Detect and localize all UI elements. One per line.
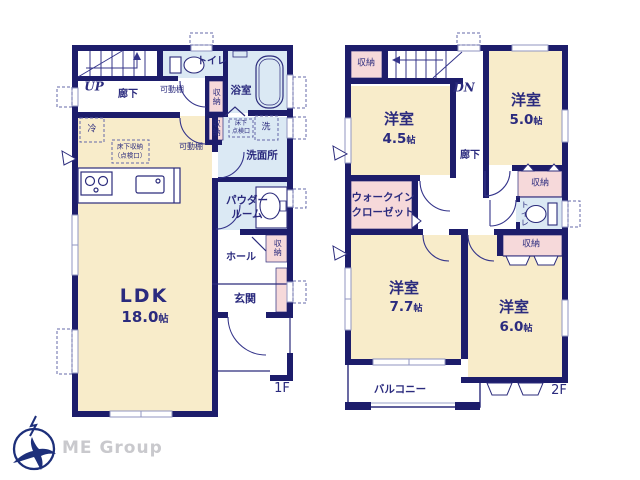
- washroom-label: 洗面所: [246, 150, 278, 161]
- hall-label: ホール: [226, 253, 256, 264]
- balcony-label: バルコニー: [374, 384, 426, 395]
- inspection-label-1: 床下: [235, 121, 247, 127]
- stairs-2f: [392, 51, 462, 78]
- room-d-label: 洋室: [499, 300, 529, 316]
- bird-icon: [13, 437, 56, 470]
- floorplan-page: UP 廊下 トイレ 浴室 可動棚 可動棚 収納 収納 床下 点検口 洗 洗面所 …: [0, 0, 640, 480]
- dn-label: DN: [453, 82, 474, 95]
- floor2-label: 2F: [551, 384, 567, 398]
- storage-hall-label: 収納: [273, 239, 281, 257]
- ldk-label: LDK: [120, 287, 169, 307]
- storage-a-label: 収納: [212, 88, 220, 106]
- wic-label-2: クローゼット: [352, 207, 415, 218]
- room-a-size: 4.5帖: [382, 132, 415, 146]
- fridge-label: 冷: [87, 125, 96, 134]
- flash-icon: [30, 416, 36, 436]
- storage-r2-label: 収納: [522, 240, 540, 249]
- room-c-label: 洋室: [389, 281, 419, 297]
- entrance-label: 玄関: [234, 293, 256, 305]
- bath-label: 浴室: [231, 85, 252, 96]
- storage-r1-label: 収納: [531, 179, 549, 188]
- toilet-fixture-2f: [526, 203, 557, 225]
- storage-b-label: 収納: [212, 119, 220, 137]
- kitchen-counter: [78, 168, 180, 203]
- storage-top-label: 収納: [357, 59, 375, 68]
- underfloor-label-2: （点検口）: [114, 153, 147, 160]
- corridor-1f-label: 廊下: [118, 90, 138, 101]
- wic-label-1: ウォークイン: [352, 192, 415, 203]
- room-a-label: 洋室: [384, 112, 414, 128]
- stairs-1f: [78, 51, 145, 77]
- shelf-b-label: 可動棚: [179, 143, 203, 151]
- underfloor-label-1: 床下収納: [117, 144, 143, 151]
- room-d-size: 6.0帖: [499, 320, 532, 334]
- powder-room-label-1: パウダー: [226, 195, 268, 206]
- shelf-a-label: 可動棚: [160, 86, 184, 94]
- room-b-label: 洋室: [511, 93, 541, 109]
- room-c-size: 7.7帖: [389, 300, 422, 314]
- toilet-1f-label: トイレ: [197, 57, 227, 68]
- room-b-size: 5.0帖: [509, 113, 542, 127]
- floor1-label: 1F: [274, 382, 290, 396]
- toilet-2f-label: トイレ: [520, 201, 528, 228]
- corridor-2f-label: 廊下: [460, 151, 480, 162]
- brand-name: ME Group: [62, 438, 163, 458]
- inspection-label-2: 点検口: [232, 129, 250, 135]
- washer-label: 洗: [261, 123, 270, 132]
- up-label: UP: [84, 81, 104, 94]
- powder-room-label-2: ルーム: [231, 209, 262, 220]
- ldk-size-label: 18.0帖: [121, 310, 168, 326]
- me-group-logo: [13, 416, 56, 470]
- floorplan-linework: [0, 0, 640, 480]
